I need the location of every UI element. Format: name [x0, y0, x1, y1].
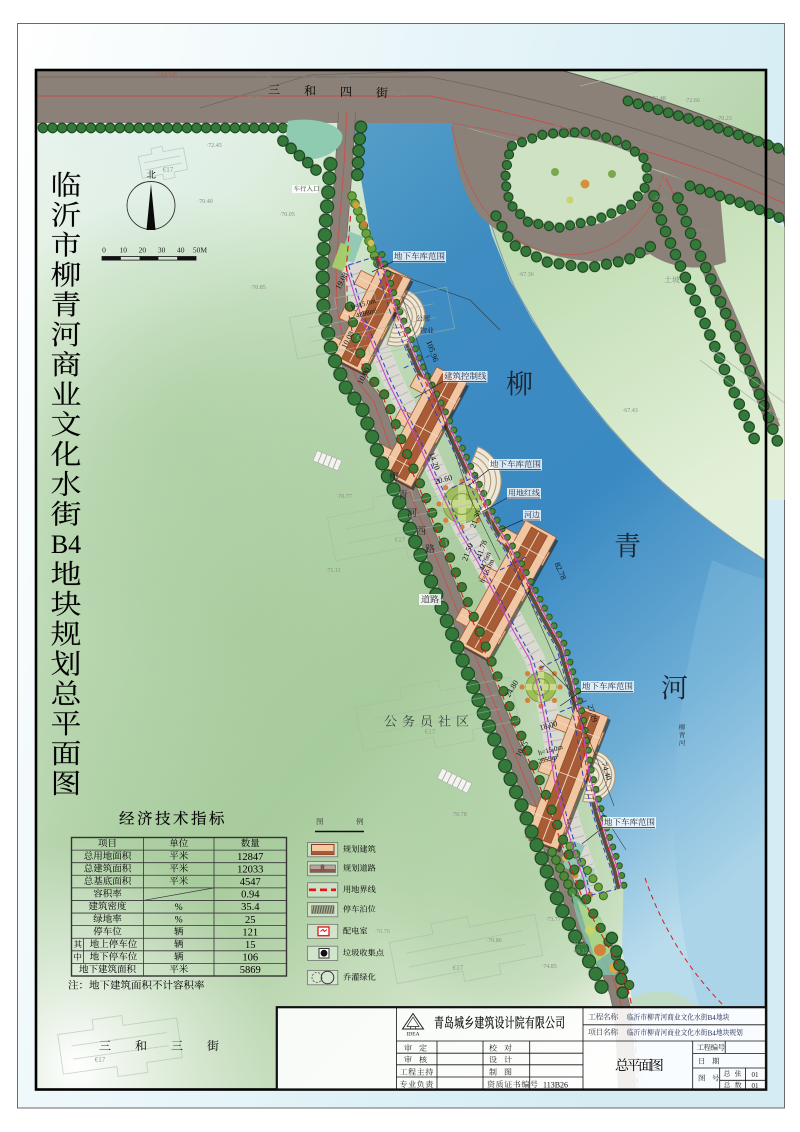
svg-text:20: 20 [139, 246, 147, 255]
svg-text:B4: B4 [51, 530, 81, 559]
svg-text:·73.77: ·73.77 [545, 917, 561, 923]
svg-text:·70.23: ·70.23 [716, 116, 732, 122]
svg-text:121: 121 [242, 927, 258, 938]
svg-text:%: % [175, 916, 183, 926]
svg-text:·72.48: ·72.48 [301, 76, 317, 82]
svg-text:·72.45: ·72.45 [206, 143, 222, 149]
svg-text:0.94: 0.94 [241, 890, 260, 901]
svg-text:·70.76: ·70.76 [374, 929, 390, 935]
svg-text:·70.86: ·70.86 [486, 938, 502, 944]
svg-text:€17: €17 [163, 166, 174, 174]
svg-text:·67.36: ·67.36 [518, 272, 534, 278]
svg-text:·70.77: ·70.77 [336, 494, 352, 500]
svg-text:·71.56: ·71.56 [256, 75, 272, 81]
svg-text:0: 0 [102, 246, 106, 255]
svg-text:40: 40 [177, 246, 185, 255]
svg-text:·70.85: ·70.85 [250, 285, 266, 291]
svg-text:25: 25 [245, 915, 256, 926]
svg-text:€17: €17 [95, 1056, 106, 1064]
svg-text:35.4: 35.4 [241, 902, 260, 913]
svg-text:·72.99: ·72.99 [333, 76, 349, 82]
svg-text:·73.247: ·73.247 [388, 92, 407, 98]
svg-text:50M: 50M [193, 246, 208, 255]
svg-text:·69.12: ·69.12 [572, 949, 588, 955]
svg-text:€17: €17 [357, 334, 368, 342]
svg-text:·67.43: ·67.43 [622, 408, 638, 414]
svg-text:01: 01 [752, 1071, 760, 1079]
svg-text:·74.85: ·74.85 [541, 964, 557, 970]
svg-text:·72.48: ·72.48 [650, 96, 666, 102]
svg-text:·11.34: ·11.34 [571, 941, 586, 947]
svg-text:30: 30 [158, 246, 166, 255]
svg-text:5869: 5869 [240, 965, 261, 976]
svg-text:·70.40: ·70.40 [197, 199, 213, 205]
svg-text:·70.78: ·70.78 [451, 812, 467, 818]
svg-text:·20.90: ·20.90 [652, 196, 668, 202]
svg-text:·71.53: ·71.53 [500, 110, 516, 116]
svg-text:·71.30: ·71.30 [246, 96, 262, 102]
svg-text:%: % [175, 903, 183, 913]
svg-text:·73.53: ·73.53 [462, 122, 478, 128]
svg-text:·72.66: ·72.66 [684, 98, 700, 104]
svg-text:B4: B4 [708, 1029, 717, 1037]
svg-text:·71.11: ·71.11 [325, 568, 340, 574]
svg-text:·71.36: ·71.36 [430, 100, 446, 106]
svg-text:·70.49: ·70.49 [692, 228, 708, 234]
svg-text:12033: 12033 [237, 864, 263, 875]
svg-text:€17: €17 [453, 964, 464, 972]
svg-text:€17: €17 [395, 536, 406, 544]
svg-text:€17: €17 [425, 728, 436, 736]
svg-text:12847: 12847 [237, 852, 263, 863]
svg-text:106: 106 [242, 953, 258, 964]
svg-text:B4: B4 [708, 1014, 717, 1022]
svg-text:10: 10 [119, 246, 127, 255]
svg-text:·71.53: ·71.53 [301, 97, 317, 103]
svg-text:IDEA: IDEA [406, 1032, 419, 1038]
svg-text:113B26: 113B26 [543, 1080, 568, 1089]
svg-text:·71.50: ·71.50 [552, 125, 568, 131]
svg-text:01: 01 [752, 1082, 760, 1090]
svg-text:·70.05: ·70.05 [279, 212, 295, 218]
svg-text:15: 15 [245, 940, 256, 951]
svg-text:4547: 4547 [240, 877, 261, 888]
